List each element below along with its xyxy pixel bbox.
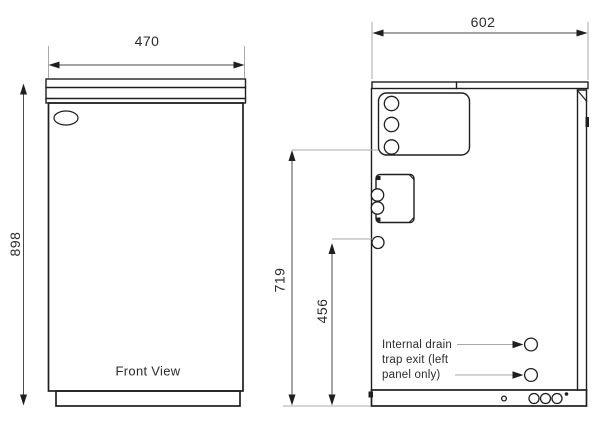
arrow-down-icon <box>20 395 27 406</box>
plinth-tab <box>369 392 374 398</box>
side-height-456-value: 456 <box>314 299 330 324</box>
arrow-up-icon <box>289 150 296 161</box>
front-width-value: 470 <box>135 33 160 49</box>
plinth <box>56 391 240 406</box>
side-width-dimension: 602 <box>372 14 588 80</box>
pipe-connection-plate <box>371 175 414 223</box>
front-width-dimension: 470 <box>49 33 245 78</box>
arrow-right-icon <box>577 30 588 37</box>
control-knockout-panel <box>379 93 470 155</box>
pipe-hole <box>371 202 383 214</box>
side-width-value: 602 <box>471 14 496 30</box>
boiler-dimension-diagram: 470 898 Front View 602 <box>0 0 600 426</box>
technical-drawing: 470 898 Front View 602 <box>0 0 600 426</box>
front-panel <box>49 103 244 391</box>
arrow-down-icon <box>329 395 336 406</box>
arrow-right-icon <box>234 62 245 69</box>
drain-note-line3: panel only) <box>382 369 440 381</box>
arrow-right-icon <box>513 371 524 378</box>
side-height-719-value: 719 <box>272 268 288 293</box>
hinge-mark <box>586 117 590 127</box>
knockout-hole <box>384 96 398 110</box>
arrow-up-icon <box>329 243 336 254</box>
top-panel <box>46 79 246 103</box>
knockout-hole <box>384 117 398 131</box>
rear-corner-fold <box>578 91 586 101</box>
plinth-hole <box>541 394 551 404</box>
front-height-dimension: 898 <box>7 84 27 406</box>
drain-connection-hole <box>372 237 384 249</box>
arrow-left-icon <box>373 30 384 37</box>
front-view-caption: Front View <box>116 364 181 379</box>
drain-note: Internal drain trap exit (left panel onl… <box>382 338 537 381</box>
knockout-hole <box>384 140 398 154</box>
arrow-down-icon <box>289 395 296 406</box>
plinth-hole <box>502 396 507 401</box>
logo-oval-icon <box>54 111 78 125</box>
drain-note-line2: trap exit (left <box>382 354 449 366</box>
pipe-hole <box>371 189 383 201</box>
front-height-value: 898 <box>7 232 23 257</box>
top-panel <box>372 82 588 89</box>
arrow-up-icon <box>20 84 27 95</box>
front-cabinet <box>46 79 246 406</box>
drain-exit-hole <box>525 338 538 351</box>
plinth-dot <box>565 392 569 396</box>
plate-screw <box>377 176 381 180</box>
drain-exit-hole <box>525 369 538 382</box>
arrow-right-icon <box>513 341 524 348</box>
plinth-hole <box>552 394 562 404</box>
drain-note-line1: Internal drain <box>382 339 452 351</box>
side-height-dimension-719: 719 <box>272 150 379 406</box>
front-view: 470 898 Front View <box>7 33 246 406</box>
plinth-hole <box>529 394 539 404</box>
plate-screw <box>377 218 381 222</box>
side-height-dimension-456: 456 <box>314 239 373 406</box>
side-view: 602 <box>272 14 590 406</box>
arrow-left-icon <box>49 62 60 69</box>
